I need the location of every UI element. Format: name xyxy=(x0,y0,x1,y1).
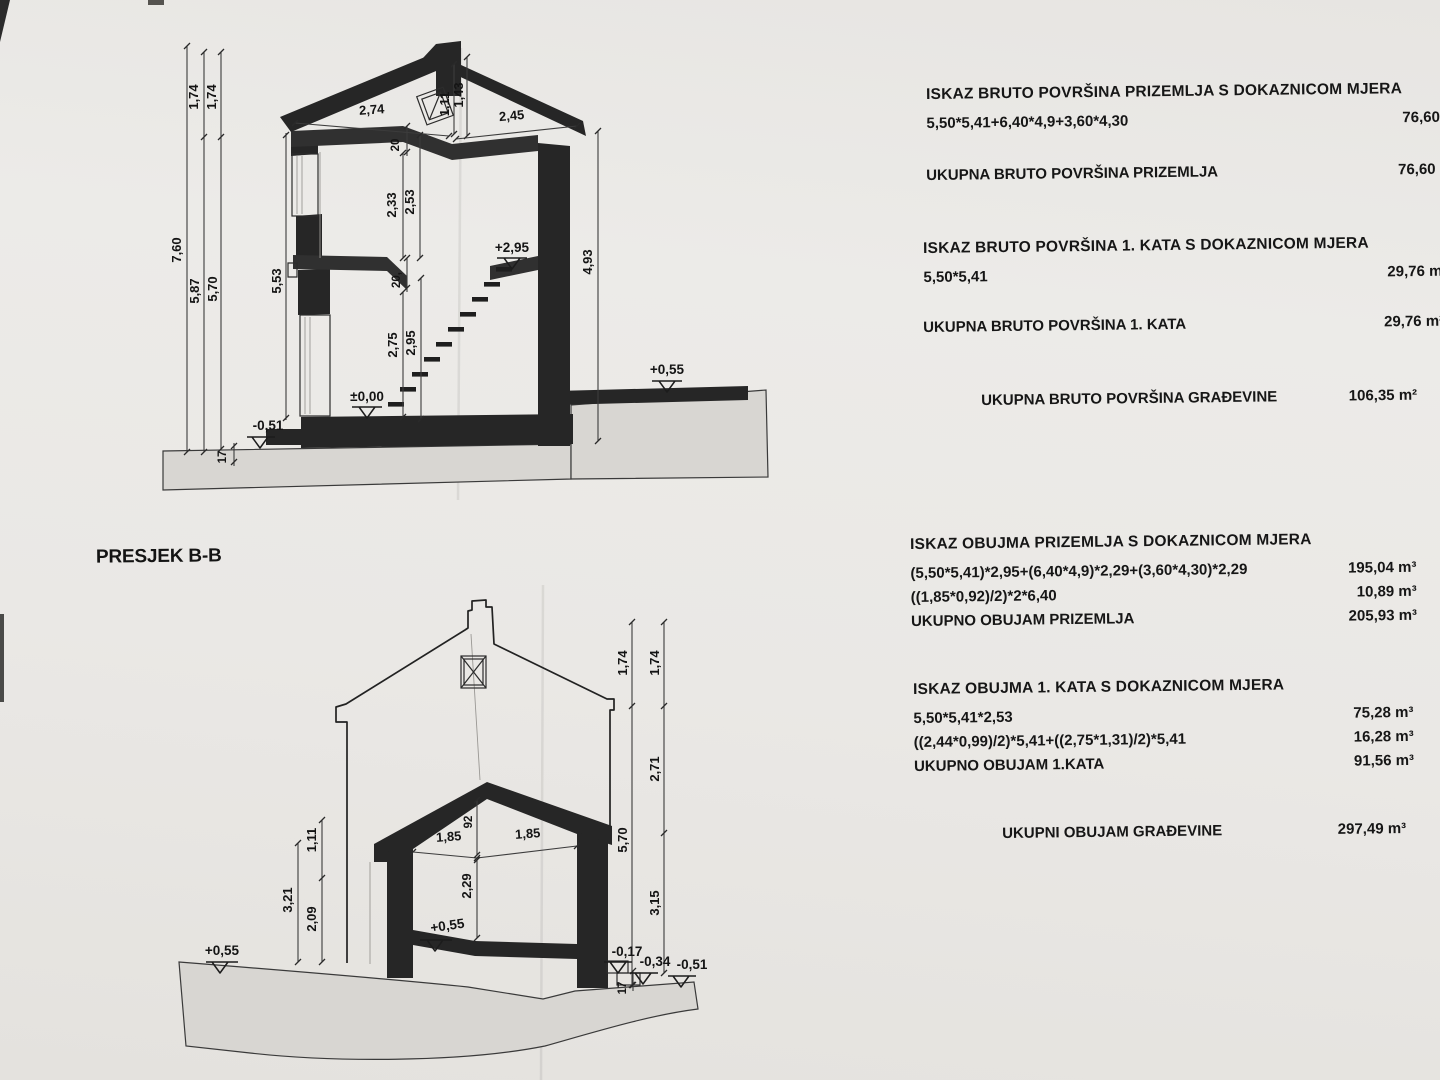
svg-text:-0,17: -0,17 xyxy=(612,944,643,959)
dim-label: 17 xyxy=(217,451,229,464)
dim-label: 1,74 xyxy=(204,84,219,110)
dim-label: 2,71 xyxy=(647,756,662,781)
calc-block-obujam-prizemlje: ISKAZ OBUJMA PRIZEMLJA S DOKAZNICOM MJER… xyxy=(910,530,1417,634)
dim-label: 1,74 xyxy=(615,650,630,676)
level-marker: -0,17 xyxy=(604,944,642,973)
calc-value: 106,35 m² xyxy=(1349,384,1418,409)
calc-block-obujam-kat: ISKAZ OBUJMA 1. KATA S DOKAZNICOM MJERA … xyxy=(913,675,1414,779)
svg-text:+2,95: +2,95 xyxy=(495,240,530,255)
calc-block-ukupna-prizemlje: UKUPNA BRUTO POVRŠINA PRIZEMLJA 76,60 m² xyxy=(926,158,1440,188)
dim-label: 1,11 xyxy=(304,828,319,853)
dim-label: 2,95 xyxy=(403,330,418,355)
svg-text:+0,55: +0,55 xyxy=(429,916,465,936)
svg-text:-0,51: -0,51 xyxy=(253,418,284,433)
dim-label: 7,60 xyxy=(169,237,184,262)
calc-heading: ISKAZ BRUTO POVRŠINA 1. KATA S DOKAZNICO… xyxy=(923,234,1440,258)
calc-formula: 5,50*5,41*2,53 xyxy=(913,706,1013,731)
calc-block-ukupni-obujam: UKUPNI OBUJAM GRAĐEVINE 297,49 m³ xyxy=(1002,817,1406,846)
svg-text:+0,55: +0,55 xyxy=(205,943,240,958)
calc-label: UKUPNA BRUTO POVRŠINA 1. KATA xyxy=(923,313,1186,340)
dim-label: 1,85 xyxy=(515,825,541,842)
dim-label: 20, xyxy=(391,272,403,288)
dim-label: 92 xyxy=(463,816,475,829)
dim-label: 1,11 xyxy=(437,92,452,117)
dim-label: 2,09 xyxy=(304,906,319,931)
calc-heading: ISKAZ OBUJMA PRIZEMLJA S DOKAZNICOM MJER… xyxy=(910,530,1416,554)
dim-label: 20 xyxy=(390,139,402,152)
section-cut xyxy=(374,782,640,988)
calc-label: UKUPNA BRUTO POVRŠINA PRIZEMLJA xyxy=(926,160,1218,188)
calc-heading: ISKAZ BRUTO POVRŠINA PRIZEMLJA S DOKAZNI… xyxy=(926,79,1440,104)
scan-artifact xyxy=(0,0,10,42)
scanned-drawing-page: 7,60 1,74 1,74 5,87 5,70 5,53 2,74 2,45 … xyxy=(0,0,1440,1080)
dim-label: 2,74 xyxy=(359,101,386,118)
calc-row: UKUPNA BRUTO POVRŠINA 1. KATA 29,76 m² xyxy=(923,310,1440,340)
calc-formula: 5,50*5,41 xyxy=(923,265,988,290)
dim-label: 3,21 xyxy=(280,887,295,912)
dimension-lines xyxy=(295,619,667,991)
svg-text:-0,51: -0,51 xyxy=(677,957,708,972)
calc-block-ukupna-kat: UKUPNA BRUTO POVRŠINA 1. KATA 29,76 m² xyxy=(923,310,1440,340)
calc-block-kat-povrsina: ISKAZ BRUTO POVRŠINA 1. KATA S DOKAZNICO… xyxy=(923,234,1440,290)
calc-formula: (5,50*5,41)*2,95+(6,40*4,9)*2,29+(3,60*4… xyxy=(910,558,1247,586)
calc-label: UKUPNA BRUTO POVRŠINA GRAĐEVINE xyxy=(981,385,1277,413)
level-marker: +0,55 xyxy=(650,362,685,392)
calc-label: UKUPNO OBUJAM 1.KATA xyxy=(914,753,1105,779)
dim-label: 2,75 xyxy=(385,332,400,357)
calc-value: 16,28 m³ xyxy=(1354,725,1414,750)
calc-value: 76,60 m² xyxy=(1398,158,1440,183)
calc-value: 297,49 m³ xyxy=(1338,817,1407,842)
calc-value: 205,93 m³ xyxy=(1348,604,1417,629)
terrain xyxy=(179,962,698,1059)
dim-label: 5,87 xyxy=(187,278,202,303)
calc-value: 29,76 m² xyxy=(1384,310,1440,335)
calc-heading: ISKAZ OBUJMA 1. KATA S DOKAZNICOM MJERA xyxy=(913,675,1413,699)
dim-label: 2,29 xyxy=(459,873,474,898)
gable-window xyxy=(461,656,486,688)
house-outline xyxy=(336,600,614,963)
level-marker: ±0,00 xyxy=(350,389,384,418)
dim-label: 1,43 xyxy=(451,82,466,107)
dim-label: 3,15 xyxy=(647,890,662,915)
calc-row: UKUPNO OBUJAM 1.KATA 91,56 m³ xyxy=(914,749,1414,779)
dim-label: 1,74 xyxy=(186,84,201,110)
dim-label: 4,93 xyxy=(580,249,595,274)
calc-row: 5,50*5,41 29,76 m² xyxy=(923,260,1440,290)
bottom-section-drawing: 1,74 1,74 2,71 5,70 3,15 3,21 2,09 1,11 … xyxy=(150,585,725,1080)
calc-value: 10,89 m³ xyxy=(1357,580,1417,605)
svg-text:+0,55: +0,55 xyxy=(650,362,685,377)
calc-block-prizemlje-povrsina: ISKAZ BRUTO POVRŠINA PRIZEMLJA S DOKAZNI… xyxy=(926,79,1440,136)
calc-value: 91,56 m³ xyxy=(1354,749,1414,774)
calc-formula: 5,50*5,41+6,40*4,9+3,60*4,30 xyxy=(926,110,1128,136)
calc-value: 195,04 m³ xyxy=(1348,556,1417,581)
dim-label: 2,45 xyxy=(498,107,525,124)
calc-block-ukupna-gradevina: UKUPNA BRUTO POVRŠINA GRAĐEVINE 106,35 m… xyxy=(981,384,1417,413)
dim-label: 17 xyxy=(617,982,629,995)
dim-label: 5,53 xyxy=(269,268,284,293)
calc-row: UKUPNI OBUJAM GRAĐEVINE 297,49 m³ xyxy=(1002,817,1406,846)
dim-label: 1,85 xyxy=(436,828,462,845)
section-title: PRESJEK B-B xyxy=(96,545,222,568)
calc-value: 76,60 m² xyxy=(1402,105,1440,130)
calc-label: UKUPNI OBUJAM GRAĐEVINE xyxy=(1002,819,1222,846)
calc-formula: ((1,85*0,92)/2)*2*6,40 xyxy=(911,584,1057,610)
roof xyxy=(280,41,586,136)
dim-label: 2,53 xyxy=(402,189,417,214)
dim-label: 1,74 xyxy=(647,650,662,676)
top-section-drawing: 7,60 1,74 1,74 5,87 5,70 5,53 2,74 2,45 … xyxy=(140,0,800,510)
calc-value: 75,28 m³ xyxy=(1353,701,1413,726)
calc-formula: ((2,44*0,99)/2)*5,41+((2,75*1,31)/2)*5,4… xyxy=(914,728,1187,755)
svg-text:±0,00: ±0,00 xyxy=(350,389,384,404)
dim-label: 5,70 xyxy=(205,276,220,301)
dim-label: 2,33 xyxy=(384,192,399,217)
calc-label: UKUPNO OBUJAM PRIZEMLJA xyxy=(911,607,1135,634)
dim-label: 5,70 xyxy=(615,827,630,852)
calc-value: 29,76 m² xyxy=(1387,260,1440,285)
calc-row: UKUPNA BRUTO POVRŠINA PRIZEMLJA 76,60 m² xyxy=(926,158,1440,188)
calc-row: 5,50*5,41+6,40*4,9+3,60*4,30 76,60 m² xyxy=(926,105,1440,136)
svg-text:-0,34: -0,34 xyxy=(640,954,671,969)
scan-artifact xyxy=(0,614,4,702)
calc-row: UKUPNO OBUJAM PRIZEMLJA 205,93 m³ xyxy=(911,604,1417,634)
calc-row: UKUPNA BRUTO POVRŠINA GRAĐEVINE 106,35 m… xyxy=(981,384,1417,413)
